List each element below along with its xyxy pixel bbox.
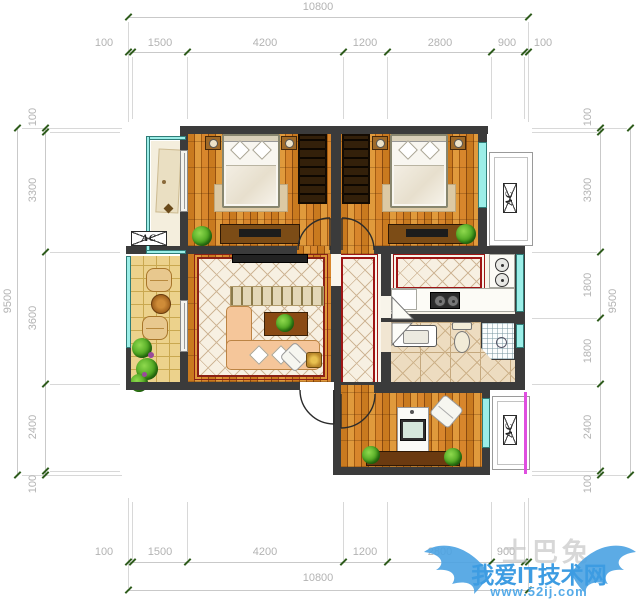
nightstand (450, 136, 466, 150)
extension-line (532, 252, 597, 253)
toilet-bowl (454, 331, 470, 353)
toilet-tank (452, 322, 472, 330)
kitchen-rug (396, 257, 482, 289)
extension-line (132, 502, 133, 560)
tv-cabinet (232, 254, 308, 263)
nightstand (205, 136, 221, 150)
potted-plant (192, 226, 212, 246)
wall (333, 467, 490, 475)
sliding-door (180, 150, 188, 212)
window (146, 136, 186, 140)
dim-top-seg-6: 100 (534, 37, 552, 49)
extension-line (50, 132, 120, 133)
bathroom-vanity (393, 325, 437, 347)
dim-bottom-seg-1: 1500 (148, 546, 172, 558)
ac-unit-label: AC (503, 415, 517, 445)
dimension-line (630, 128, 631, 475)
wardrobe-2 (342, 134, 370, 204)
dim-left-seg-1: 3300 (27, 160, 39, 220)
flower-accent (142, 372, 147, 377)
dim-right-seg-1: 3300 (582, 160, 594, 220)
door-opening (331, 254, 341, 286)
dim-top-seg-0: 100 (95, 37, 113, 49)
dim-right-seg-5: 100 (582, 454, 594, 514)
window (516, 324, 524, 348)
gold-side-table (306, 352, 322, 368)
extension-line (50, 384, 120, 385)
sofa-back-console (230, 286, 324, 306)
dim-bottom-seg-2: 4200 (253, 546, 277, 558)
wall (374, 385, 490, 393)
watermark-url: www.52ij.com (444, 584, 634, 599)
burner (447, 295, 459, 307)
extension-line (532, 318, 597, 319)
extension-line (532, 475, 627, 476)
extension-line (343, 502, 344, 560)
window (478, 142, 487, 208)
pillow (420, 140, 440, 160)
potted-plant (456, 224, 476, 244)
extension-line (50, 471, 120, 472)
extension-line (187, 502, 188, 560)
extension-line (532, 384, 597, 385)
nightstand (281, 136, 297, 150)
dimension-tick (14, 471, 22, 479)
extension-line (187, 57, 188, 119)
dimension-line (128, 17, 528, 18)
dimension-line (600, 128, 601, 475)
headboard (392, 136, 446, 142)
wardrobe-1 (298, 134, 327, 204)
wall (333, 385, 341, 475)
extension-line (50, 252, 120, 253)
rattan-chair (146, 268, 172, 292)
window (516, 254, 524, 312)
extension-line (343, 57, 344, 119)
dim-top-seg-5: 900 (498, 37, 516, 49)
boundary-highlight-line (524, 392, 527, 474)
kitchen-sink (391, 289, 417, 310)
wall (331, 126, 341, 254)
pillow (398, 140, 418, 160)
blanket (394, 165, 444, 204)
dim-left-total: 9500 (2, 271, 14, 331)
dimension-line (45, 128, 46, 475)
door-opening (297, 246, 330, 254)
dim-bottom-total: 10800 (303, 572, 334, 584)
dim-right-total: 9500 (607, 271, 619, 331)
coffee-table-plant (276, 314, 294, 332)
dim-top-seg-1: 1500 (148, 37, 172, 49)
extension-line (128, 22, 129, 122)
extension-line (132, 57, 133, 119)
dim-top-seg-3: 1200 (353, 37, 377, 49)
wall (381, 254, 391, 296)
dim-right-seg-3: 1800 (582, 321, 594, 381)
monitor-screen (403, 422, 423, 438)
flower-accent (148, 352, 154, 358)
wall (374, 246, 525, 254)
window (126, 256, 131, 348)
double-bed-1 (222, 134, 280, 208)
ac-unit-label: AC (503, 183, 517, 213)
wall (331, 286, 341, 390)
dim-right-seg-2: 1800 (582, 255, 594, 315)
pillow (252, 140, 272, 160)
headboard (224, 136, 278, 142)
dimension-tick (627, 471, 635, 479)
pillow (230, 140, 250, 160)
dim-left-seg-0: 100 (27, 87, 39, 147)
entry-door-opening (300, 382, 334, 390)
potted-plant (444, 448, 462, 466)
potted-plant (362, 446, 380, 464)
wall (126, 382, 300, 390)
wall (180, 254, 188, 300)
extension-line (387, 502, 388, 560)
dim-top-total: 10800 (303, 1, 334, 13)
sliding-door (180, 300, 188, 352)
dimension-tick (525, 13, 533, 21)
dresser-tv-2 (388, 224, 466, 244)
window (146, 250, 186, 254)
wall (389, 314, 525, 322)
dresser-tv-1 (220, 224, 300, 244)
dim-right-seg-0: 100 (582, 87, 594, 147)
extension-line (491, 57, 492, 119)
dim-bottom-seg-3: 1200 (353, 546, 377, 558)
entry-door (300, 390, 334, 424)
dim-top-seg-2: 4200 (253, 37, 277, 49)
corridor-runner-rug (341, 257, 375, 385)
extension-line (528, 22, 529, 122)
extension-line (532, 128, 627, 129)
door-opening (341, 246, 374, 254)
ac-unit-label: AC (131, 231, 167, 246)
wall (126, 348, 131, 390)
dimension-line (17, 128, 18, 475)
nightstand (372, 136, 388, 150)
extension-line (128, 498, 129, 588)
extension-line (387, 57, 388, 119)
window (482, 398, 490, 448)
dim-top-seg-4: 2800 (428, 37, 452, 49)
door-opening (381, 322, 391, 352)
double-bed-2 (390, 134, 448, 208)
floor-plan-sheet: 10800 100 1500 4200 1200 2800 900 100 95… (0, 0, 640, 608)
round-tea-table (151, 294, 171, 314)
dim-left-seg-4: 100 (27, 454, 39, 514)
floor-decor-dot (162, 180, 166, 184)
rattan-chair (142, 316, 168, 340)
burner (495, 258, 509, 272)
door-opening (381, 296, 391, 318)
burner (434, 295, 446, 307)
burner (495, 273, 509, 287)
wall (330, 246, 341, 254)
dim-bottom-seg-0: 100 (95, 546, 113, 558)
dim-right-seg-4: 2400 (582, 397, 594, 457)
dim-left-seg-3: 2400 (27, 397, 39, 457)
extension-line (524, 57, 525, 119)
blanket (226, 165, 276, 204)
door-opening (341, 385, 374, 393)
desk-lamp (410, 410, 414, 414)
dim-left-seg-2: 3600 (27, 288, 39, 348)
